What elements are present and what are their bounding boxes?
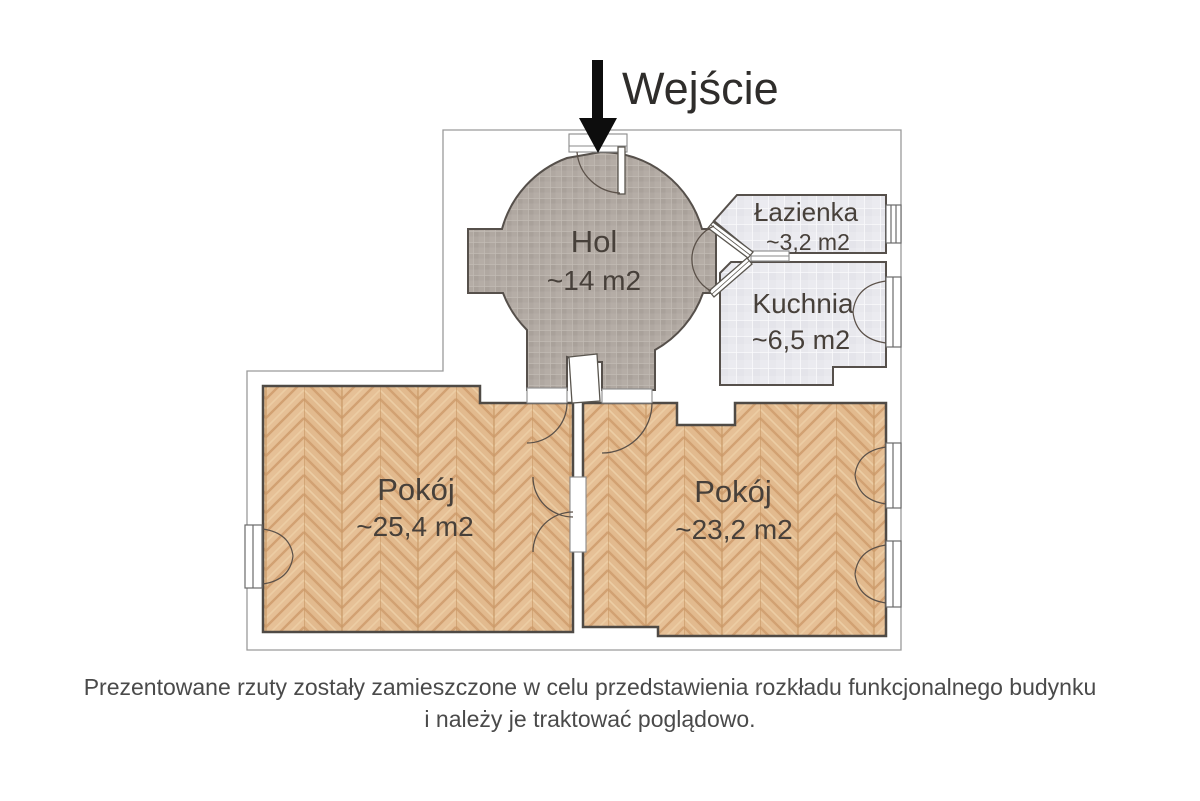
door-leaf-hol-recess <box>569 354 600 403</box>
room-pokoj-right-area: ~23,2 m2 <box>675 514 793 545</box>
floor-plan-svg: Hol ~14 m2 Łazienka ~3,2 m2 Kuchnia ~6,5… <box>0 0 1200 801</box>
disclaimer-line-1: Prezentowane rzuty zostały zamieszczone … <box>84 674 1097 700</box>
room-kuchnia-area: ~6,5 m2 <box>752 325 850 355</box>
room-hol-label: Hol <box>571 224 618 259</box>
room-pokoj-left-floor <box>263 386 573 632</box>
window-lazienka <box>886 205 901 243</box>
entrance-label: Wejście <box>622 63 779 114</box>
room-lazienka-label: Łazienka <box>754 197 859 227</box>
room-kuchnia-label: Kuchnia <box>752 288 854 319</box>
threshold-hol-pokoj-left <box>527 388 567 403</box>
threshold-hol-pokoj-right <box>602 389 652 403</box>
room-pokoj-right-label: Pokój <box>694 474 772 509</box>
room-pokoj-right: Pokój ~23,2 m2 <box>583 403 886 636</box>
disclaimer-line-2: i należy je traktować poglądowo. <box>424 706 755 732</box>
room-pokoj-left-area: ~25,4 m2 <box>356 511 474 542</box>
room-hol-area: ~14 m2 <box>547 265 641 296</box>
entrance-door-leaf <box>618 147 625 194</box>
room-kuchnia-floor <box>720 262 886 385</box>
threshold-between-rooms <box>570 477 586 552</box>
room-pokoj-left: Pokój ~25,4 m2 <box>263 386 573 632</box>
room-pokoj-left-label: Pokój <box>377 472 455 507</box>
floor-plan-page: Hol ~14 m2 Łazienka ~3,2 m2 Kuchnia ~6,5… <box>0 0 1200 801</box>
room-kuchnia: Kuchnia ~6,5 m2 <box>720 262 886 385</box>
